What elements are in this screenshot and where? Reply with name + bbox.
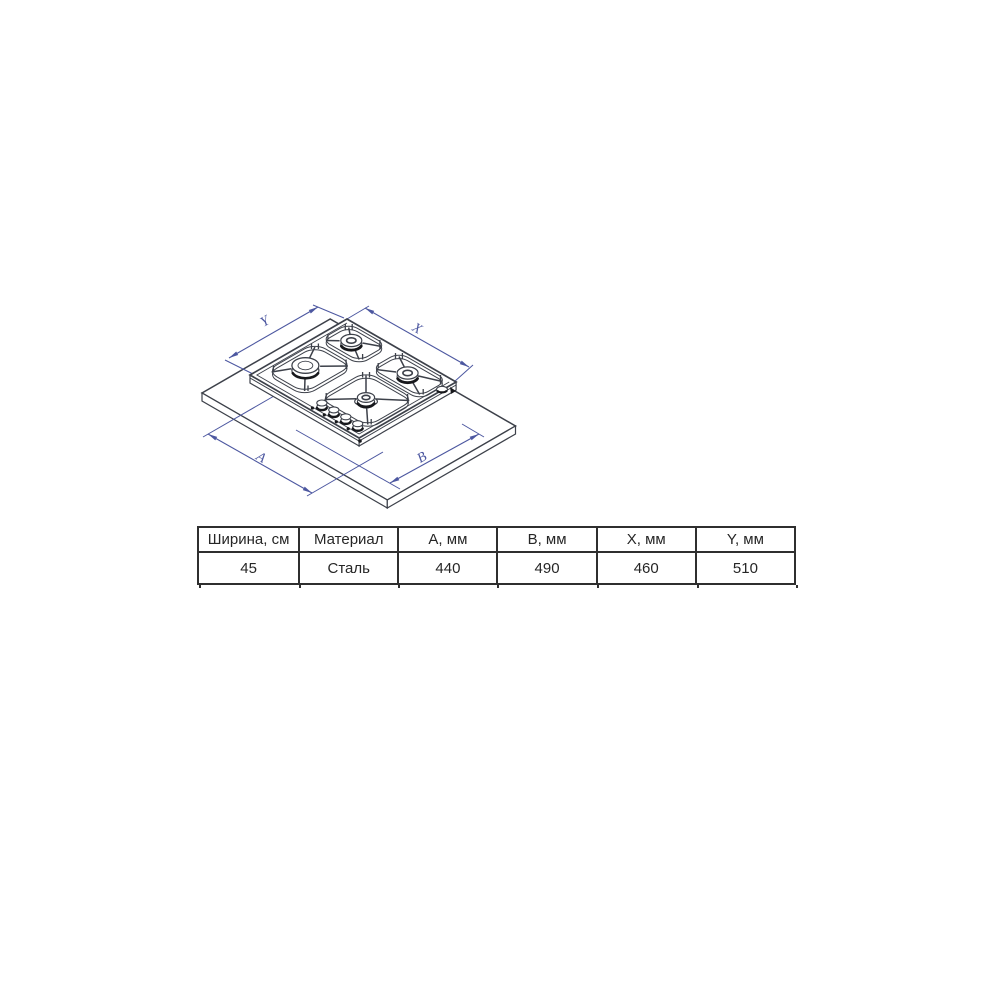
- svg-text:Y: Y: [258, 312, 274, 330]
- svg-text:A: A: [252, 449, 268, 467]
- svg-text:X: X: [408, 320, 424, 338]
